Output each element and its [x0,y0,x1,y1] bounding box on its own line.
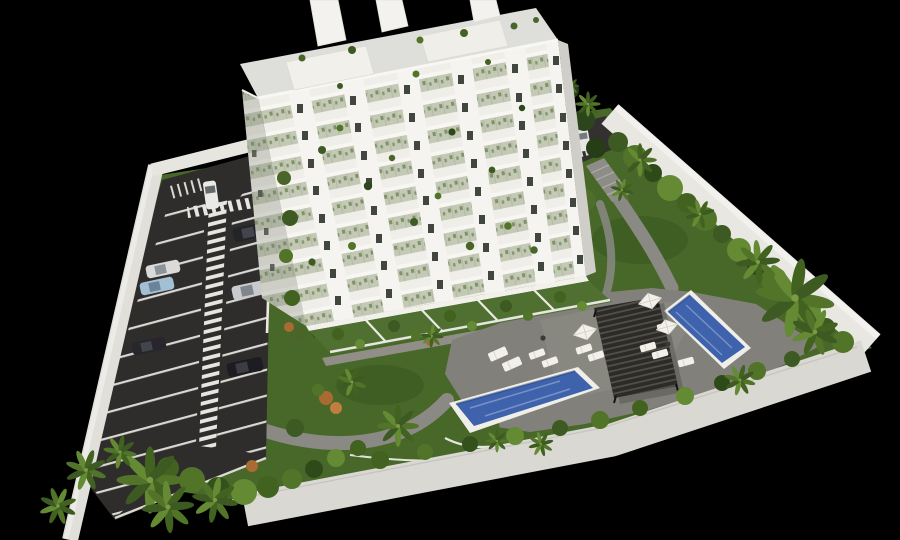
penthouse-tower [376,0,408,32]
render-canvas: Aerial 3D architectural rendering of a w… [0,0,900,540]
architectural-render: Aerial 3D architectural rendering of a w… [0,0,900,540]
side-table [540,335,545,340]
side-table [666,342,671,347]
